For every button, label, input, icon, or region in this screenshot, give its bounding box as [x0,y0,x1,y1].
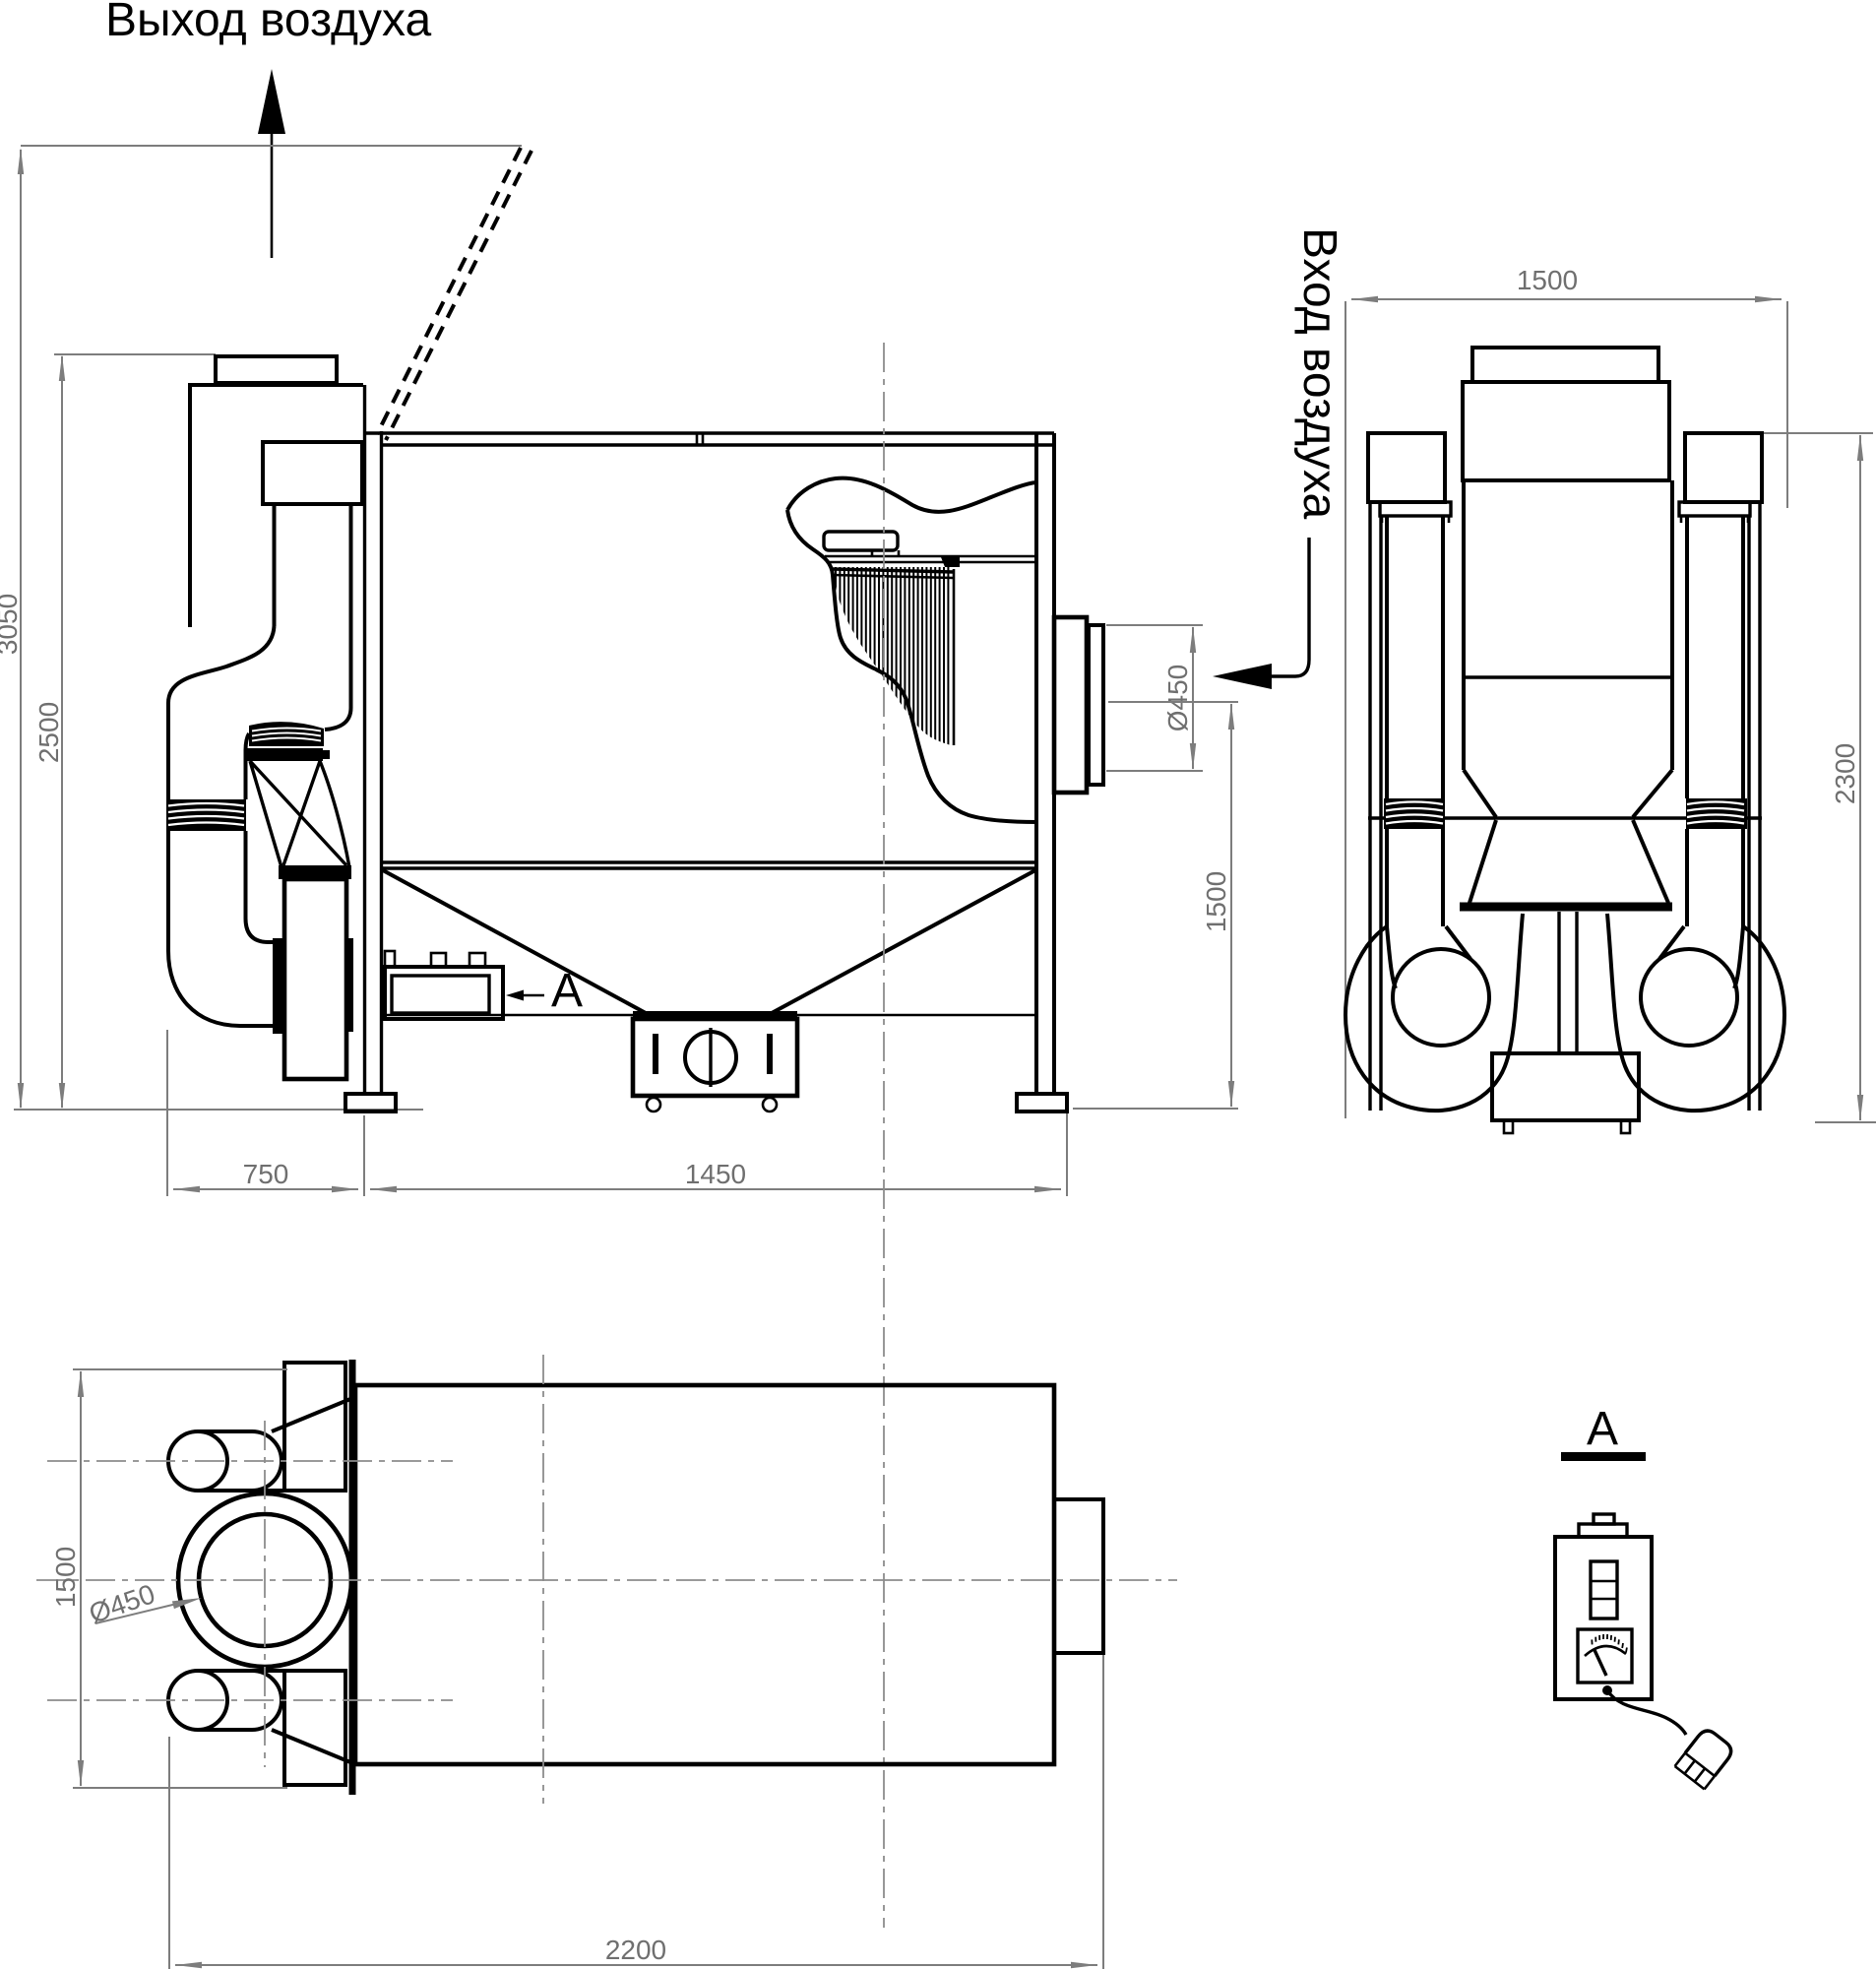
svg-text:1500: 1500 [1201,871,1231,932]
svg-text:Выход воздуха: Выход воздуха [105,0,432,46]
svg-text:3050: 3050 [0,594,23,655]
svg-text:750: 750 [243,1159,289,1189]
svg-text:A: A [551,965,583,1017]
svg-text:2300: 2300 [1830,743,1860,804]
svg-text:A: A [1587,1403,1618,1455]
svg-text:1450: 1450 [685,1159,746,1189]
svg-text:Ø450: Ø450 [1162,665,1193,732]
svg-text:2500: 2500 [33,702,64,763]
svg-text:1500: 1500 [1517,265,1578,295]
svg-text:Вход воздуха: Вход воздуха [1293,227,1345,519]
svg-text:1500: 1500 [50,1547,81,1608]
svg-text:2200: 2200 [605,1935,666,1965]
